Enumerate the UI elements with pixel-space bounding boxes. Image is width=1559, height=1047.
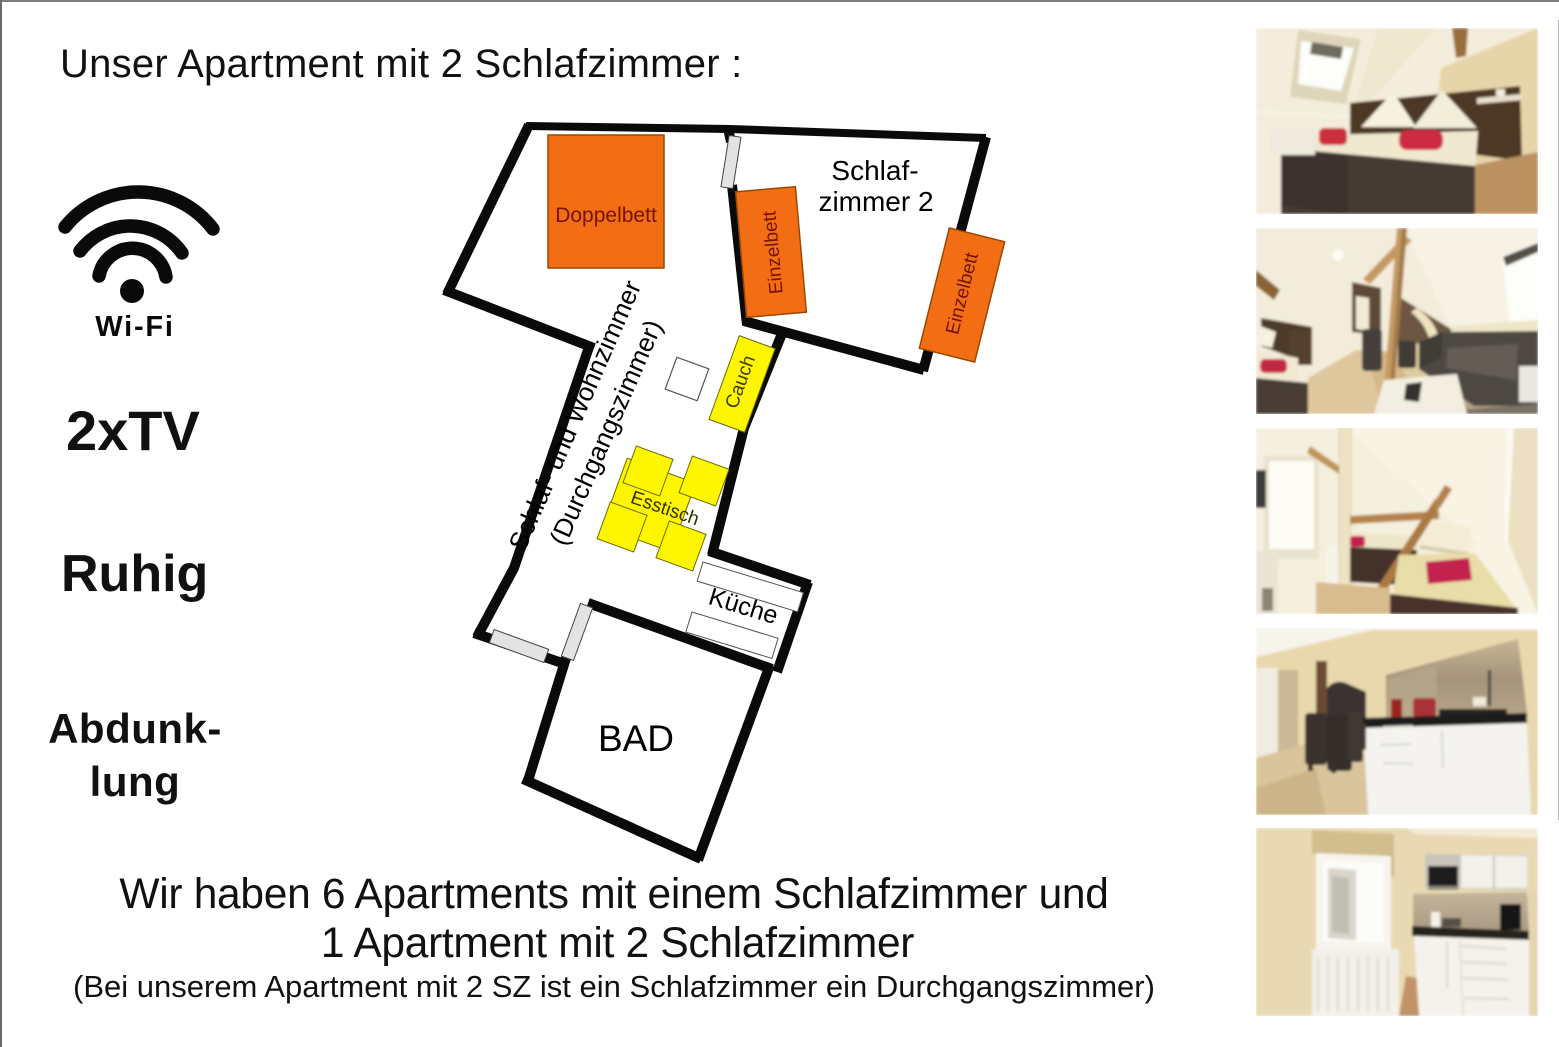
svg-text:BAD: BAD	[598, 718, 674, 759]
svg-text:Schlaf-: Schlaf-	[831, 155, 918, 186]
svg-text:zimmer 2: zimmer 2	[818, 186, 933, 217]
svg-text:Doppelbett: Doppelbett	[555, 204, 657, 227]
